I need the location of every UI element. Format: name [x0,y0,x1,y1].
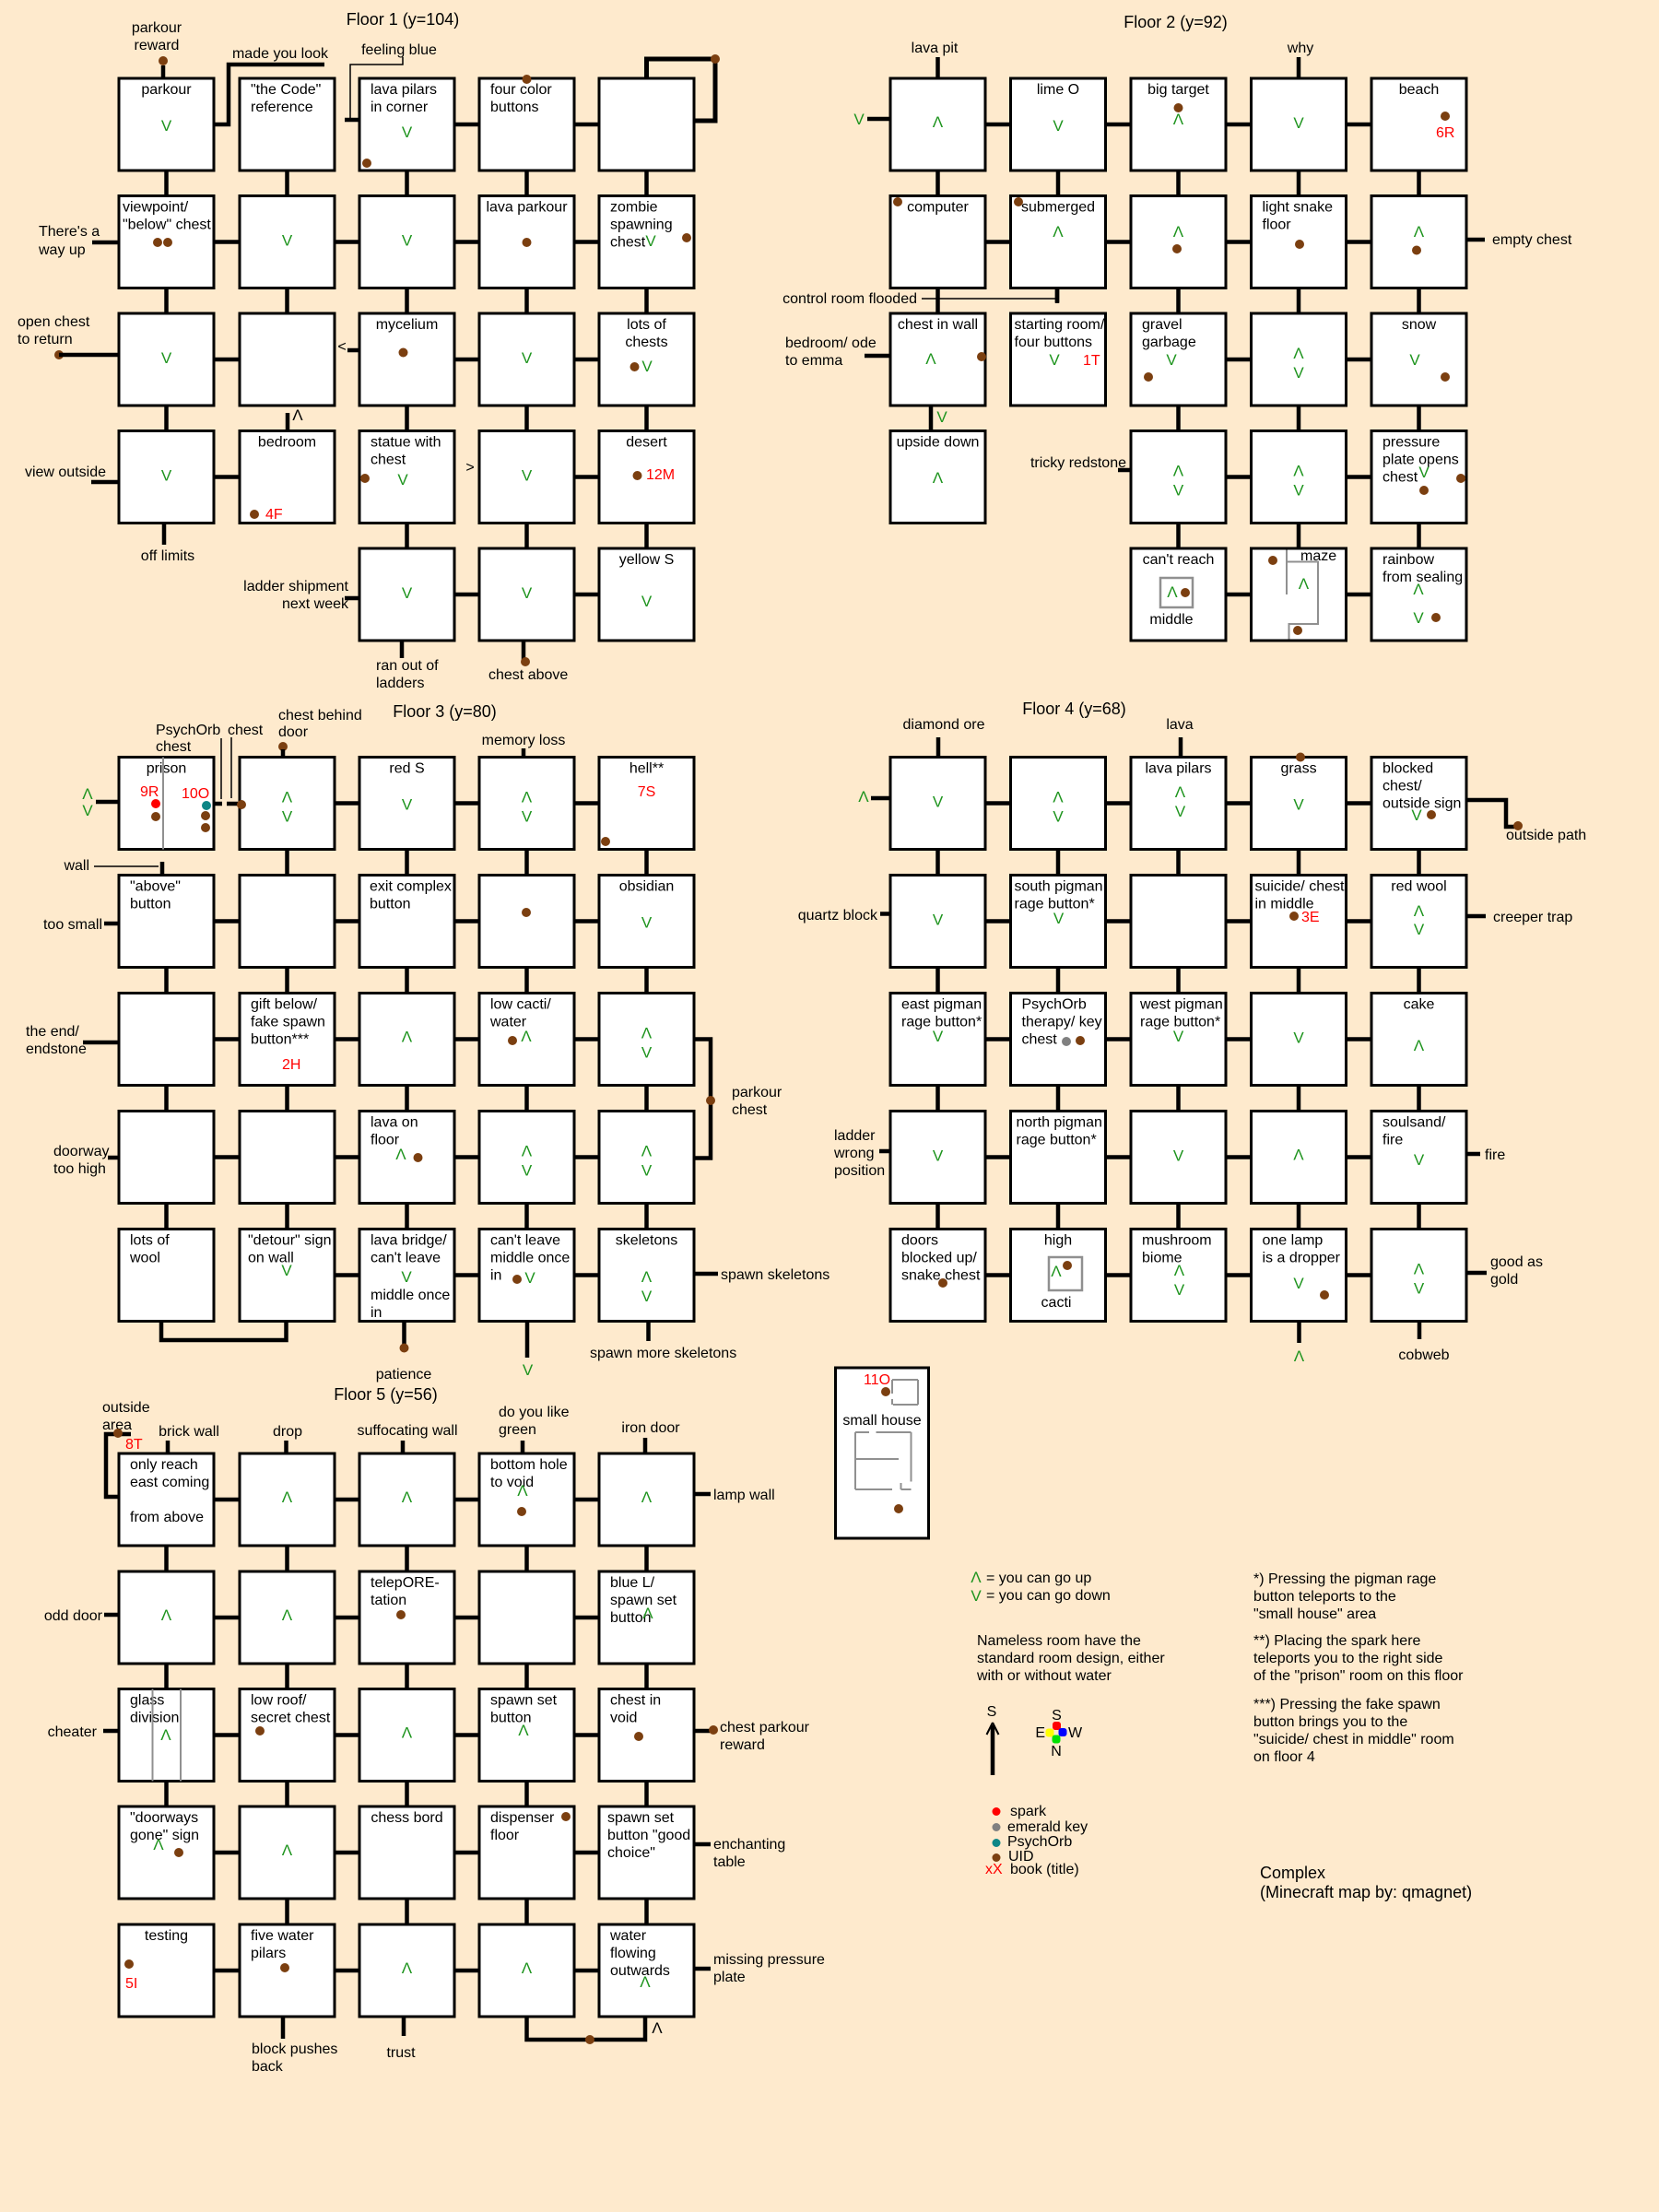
svg-text:emerald key: emerald key [1007,1819,1088,1835]
svg-text:lava pilars: lava pilars [371,82,437,98]
svg-text:V: V [281,1488,292,1506]
svg-text:open chest: open chest [18,314,90,330]
svg-text:trust: trust [386,2045,416,2061]
svg-text:chest behind: chest behind [278,708,362,724]
svg-text:four color: four color [490,82,552,98]
svg-text:west pigman: west pigman [1139,997,1223,1013]
svg-text:V: V [521,1028,532,1045]
svg-text:prison: prison [147,761,187,777]
svg-text:wool: wool [129,1251,160,1266]
svg-text:V: V [1413,223,1424,241]
svg-text:Floor 5 (y=56): Floor 5 (y=56) [334,1385,438,1404]
svg-text:"detour" sign: "detour" sign [248,1233,332,1249]
svg-text:ran out of: ran out of [376,658,439,674]
svg-text:V: V [642,1605,653,1622]
svg-text:2H: 2H [282,1057,300,1073]
svg-text:way up: way up [38,242,86,258]
svg-text:chest: chest [1022,1032,1058,1048]
svg-text:chest above: chest above [488,667,568,683]
svg-text:V: V [925,350,936,368]
svg-text:upside down: upside down [897,435,980,451]
svg-text:tation: tation [371,1593,406,1608]
svg-text:feeling blue: feeling blue [361,42,437,58]
svg-text:12M: 12M [646,467,675,483]
svg-text:V: V [1053,808,1064,826]
svg-text:V: V [1173,1147,1184,1165]
svg-text:chest in wall: chest in wall [898,317,978,333]
svg-text:mycelium: mycelium [376,317,439,333]
svg-text:gold: gold [1490,1272,1518,1288]
svg-text:"the Code": "the Code" [251,82,321,98]
svg-text:V: V [161,349,172,367]
svg-text:V: V [82,785,93,803]
svg-text:blue L/: blue L/ [610,1575,655,1591]
svg-text:good as: good as [1490,1254,1543,1270]
svg-text:Floor 4 (y=68): Floor 4 (y=68) [1022,700,1126,718]
svg-text:6R: 6R [1436,125,1454,141]
svg-text:V: V [1175,803,1186,820]
svg-text:wall: wall [63,858,89,874]
svg-text:W: W [1068,1725,1083,1741]
svg-text:V: V [641,1044,653,1062]
svg-text:secret chest: secret chest [251,1711,331,1726]
svg-text:chests: chests [625,335,667,350]
svg-text:hell**: hell** [629,761,664,777]
svg-text:lava pilars: lava pilars [1145,761,1211,777]
svg-text:chest/: chest/ [1382,779,1422,794]
svg-text:V: V [1167,583,1178,601]
svg-text:V: V [1172,462,1183,479]
svg-text:(Minecraft map by: qmagnet): (Minecraft map by: qmagnet) [1260,1883,1472,1901]
svg-text:why: why [1287,41,1313,56]
svg-text:10O: 10O [182,786,209,802]
svg-text:in: in [490,1268,501,1284]
svg-text:with or without water: with or without water [976,1668,1112,1684]
svg-text:V: V [153,1836,164,1853]
svg-text:V: V [641,1024,652,1041]
svg-text:V: V [1413,609,1424,627]
svg-text:wrong: wrong [833,1146,875,1161]
svg-text:in: in [371,1305,382,1321]
svg-text:suicide/ chest: suicide/ chest [1255,879,1345,895]
svg-text:V: V [1293,364,1304,382]
svg-text:V: V [971,1569,982,1586]
svg-text:drop: drop [273,1424,302,1440]
svg-text:V: V [160,1726,171,1744]
svg-text:grass: grass [1280,761,1316,777]
svg-text:V: V [1173,482,1184,500]
svg-text:V: V [523,1361,534,1379]
svg-text:ladder shipment: ladder shipment [243,579,348,594]
svg-text:spawn more skeletons: spawn more skeletons [590,1346,736,1361]
svg-text:low roof/: low roof/ [251,1693,307,1709]
svg-text:off limits: off limits [141,548,194,564]
svg-text:from above: from above [130,1510,204,1525]
svg-text:lamp wall: lamp wall [713,1488,775,1503]
svg-text:blocked: blocked [1382,761,1433,777]
svg-text:only reach: only reach [130,1457,198,1473]
svg-text:table: table [713,1854,746,1870]
svg-text:missing pressure: missing pressure [713,1952,825,1968]
svg-text:Nameless room have the: Nameless room have the [977,1633,1141,1649]
svg-text:telepORE-: telepORE- [371,1575,440,1591]
svg-text:chest parkour: chest parkour [720,1720,810,1735]
svg-text:cake: cake [1404,997,1435,1013]
svg-text:chest: chest [371,453,406,468]
svg-text:PsychOrb: PsychOrb [156,723,220,738]
svg-text:lots of: lots of [130,1233,170,1249]
svg-text:ladders: ladders [376,676,424,691]
svg-text:gravel: gravel [1142,317,1182,333]
svg-text:exit complex: exit complex [370,879,452,895]
svg-text:skeletons: skeletons [616,1233,678,1249]
svg-text:floor: floor [371,1133,400,1148]
svg-text:view outside: view outside [25,465,106,480]
svg-text:computer: computer [907,200,969,216]
svg-text:V: V [932,469,943,487]
svg-text:V: V [281,788,292,806]
svg-text:V: V [401,1724,412,1741]
svg-text:3E: 3E [1301,910,1320,925]
svg-text:outside: outside [102,1400,150,1416]
svg-text:V: V [281,1262,292,1279]
svg-text:division: division [130,1711,179,1726]
svg-text:chest in: chest in [610,1693,661,1709]
svg-text:V: V [160,1606,171,1624]
svg-text:empty chest: empty chest [1492,232,1572,248]
svg-text:mushroom: mushroom [1142,1233,1212,1249]
svg-text:V: V [1293,1347,1304,1365]
svg-text:9R: 9R [140,784,159,800]
svg-text:spark: spark [1010,1804,1047,1819]
svg-text:V: V [281,1606,292,1624]
svg-text:Floor 2 (y=92): Floor 2 (y=92) [1124,13,1228,31]
svg-text:V: V [1413,581,1424,598]
svg-text:V: V [1298,575,1309,593]
svg-text:V: V [641,1288,653,1305]
svg-text:V: V [401,1028,412,1045]
svg-text:Complex: Complex [1260,1864,1325,1882]
svg-text:brick wall: brick wall [159,1424,219,1440]
svg-text:V: V [1053,117,1064,135]
svg-text:iron door: iron door [621,1420,680,1436]
svg-text:position: position [834,1163,885,1179]
svg-text:V: V [395,1146,406,1163]
svg-text:rage button*: rage button* [1017,1133,1097,1148]
svg-text:5I: 5I [125,1976,137,1992]
svg-text:V: V [401,1268,412,1286]
svg-text:north pigman: north pigman [1017,1115,1102,1131]
svg-text:submerged: submerged [1021,200,1095,216]
svg-text:V: V [641,1142,652,1159]
svg-text:odd door: odd door [44,1608,103,1624]
svg-text:can't leave: can't leave [371,1251,441,1266]
svg-text:starting room/: starting room/ [1015,317,1105,333]
svg-text:V: V [1172,223,1183,241]
svg-text:V: V [521,1142,532,1159]
svg-text:door: door [278,724,309,740]
svg-text:"above": "above" [130,879,181,895]
svg-text:V: V [971,1587,982,1605]
svg-text:parkour: parkour [732,1085,782,1100]
svg-text:V: V [1414,1151,1425,1169]
svg-text:water: water [609,1928,647,1944]
svg-text:bedroom/ ode: bedroom/ ode [785,335,877,351]
svg-text:big target: big target [1147,82,1209,98]
svg-text:desert: desert [626,435,667,451]
svg-text:cobweb: cobweb [1398,1347,1449,1363]
svg-text:spawn set: spawn set [607,1810,675,1826]
svg-text:patience: patience [376,1367,432,1382]
svg-text:diamond ore: diamond ore [903,717,985,733]
svg-text:button teleports to the: button teleports to the [1253,1589,1396,1605]
svg-text:book (title): book (title) [1010,1862,1079,1877]
svg-text:gift below/: gift below/ [251,997,318,1013]
svg-text:lava parkour: lava parkour [486,200,568,216]
svg-text:outside path: outside path [1506,828,1586,843]
svg-text:lava on: lava on [371,1115,418,1131]
svg-text:V: V [402,124,413,141]
svg-text:do you like: do you like [499,1405,570,1420]
svg-text:V: V [1053,223,1064,241]
svg-text:V: V [933,794,944,811]
svg-text:V: V [1293,482,1304,500]
svg-text:plate: plate [713,1970,746,1985]
svg-text:V: V [401,1959,412,1977]
svg-text:button***: button*** [251,1032,309,1048]
svg-text:V: V [641,914,653,932]
svg-text:teleports you to the right sid: teleports you to the right side [1253,1651,1443,1666]
svg-text:chest: chest [1382,470,1418,486]
svg-text:"doorways: "doorways [130,1810,198,1826]
svg-text:glass: glass [130,1693,164,1709]
svg-text:reference: reference [251,100,313,115]
svg-text:V: V [641,358,653,375]
svg-text:V: V [1409,351,1420,369]
svg-text:lime O: lime O [1037,82,1079,98]
svg-text:V: V [858,788,869,806]
svg-text:V: V [1293,1275,1304,1292]
svg-text:V: V [522,1162,533,1180]
svg-text:dispenser: dispenser [490,1810,555,1826]
svg-text:button: button [130,897,171,912]
svg-text:V: V [1173,1262,1184,1279]
svg-text:can't reach: can't reach [1143,552,1215,568]
svg-text:PsychOrb: PsychOrb [1007,1834,1072,1850]
svg-text:quartz block: quartz block [798,908,878,924]
svg-text:V: V [402,796,413,814]
svg-text:chest: chest [156,739,192,755]
svg-text:creeper trap: creeper trap [1493,910,1572,925]
svg-text:lava: lava [1166,717,1193,733]
svg-text:>: > [465,460,474,476]
svg-text:tricky redstone: tricky redstone [1030,455,1126,471]
svg-text:= you can go up: = you can go up [986,1571,1091,1586]
svg-text:V: V [853,111,865,128]
svg-text:V: V [1293,114,1304,132]
svg-text:"below" chest: "below" chest [123,218,211,233]
svg-text:xX: xX [985,1862,1003,1877]
svg-text:made you look: made you look [232,46,329,62]
svg-text:statue with: statue with [371,435,441,451]
svg-text:PsychOrb: PsychOrb [1022,997,1087,1013]
svg-text:lava pit: lava pit [912,41,959,56]
svg-text:four buttons: four buttons [1015,335,1093,350]
svg-text:V: V [1414,1280,1425,1298]
svg-text:V: V [1413,902,1424,920]
svg-text:low cacti/: low cacti/ [490,997,551,1013]
svg-text:on floor 4: on floor 4 [1253,1749,1315,1765]
svg-text:V: V [641,593,653,610]
svg-text:4F: 4F [265,507,283,523]
svg-text:V: V [522,349,533,367]
svg-text:endstone: endstone [26,1041,87,1057]
svg-text:V: V [1174,783,1185,801]
svg-text:button: button [370,897,410,912]
svg-text:V: V [1049,351,1060,369]
svg-text:yellow S: yellow S [619,552,675,568]
svg-text:in corner: in corner [371,100,429,115]
svg-text:buttons: buttons [490,100,538,115]
svg-text:standard room design, either: standard room design, either [977,1651,1165,1666]
svg-text:V: V [281,1841,292,1859]
svg-text:V: V [397,471,408,488]
svg-text:choice": choice" [607,1845,655,1861]
svg-text:doors: doors [901,1233,938,1249]
svg-text:V: V [1293,462,1304,479]
svg-text:V: V [1172,111,1183,128]
svg-text:obsidian: obsidian [619,879,675,895]
svg-text:snow: snow [1402,317,1437,333]
svg-text:V: V [282,232,293,250]
svg-text:bedroom: bedroom [258,435,316,451]
svg-text:S: S [1052,1708,1062,1724]
svg-text:beach: beach [1399,82,1440,98]
svg-text:V: V [933,1028,944,1045]
svg-text:is a dropper: is a dropper [1263,1251,1341,1266]
svg-text:V: V [282,808,293,826]
svg-text:V: V [82,802,93,819]
svg-text:east pigman: east pigman [901,997,982,1013]
svg-text:V: V [936,408,947,426]
svg-text:too high: too high [53,1161,106,1177]
svg-text:V: V [932,113,943,131]
svg-text:11O: 11O [864,1372,890,1388]
svg-text:doorway: doorway [53,1144,109,1159]
svg-text:V: V [1293,1030,1304,1047]
svg-text:south pigman: south pigman [1015,879,1103,895]
svg-text:outside sign: outside sign [1382,796,1461,812]
svg-text:**) Placing the spark here: **) Placing the spark here [1253,1633,1421,1649]
svg-text:pressure: pressure [1382,435,1440,451]
svg-text:spawn set: spawn set [490,1693,558,1709]
svg-text:*) Pressing the pigman rage: *) Pressing the pigman rage [1253,1571,1436,1587]
svg-text:reward: reward [720,1737,765,1753]
svg-text:8T: 8T [125,1437,143,1453]
svg-text:V: V [641,1268,652,1286]
svg-text:of the "prison" room on this f: of the "prison" room on this floor [1253,1668,1464,1684]
svg-text:V: V [402,232,413,250]
svg-text:chest: chest [732,1102,768,1118]
svg-text:button "good: button "good [607,1828,690,1843]
svg-text:floor: floor [490,1828,520,1843]
svg-text:V: V [522,584,533,602]
svg-text:red wool: red wool [1391,879,1446,895]
svg-text:lava bridge/: lava bridge/ [371,1233,447,1249]
svg-text:the end/: the end/ [26,1024,79,1040]
svg-text:light snake: light snake [1263,200,1334,216]
svg-text:one lamp: one lamp [1263,1233,1324,1249]
svg-text:control room flooded: control room flooded [782,291,917,307]
svg-text:V: V [1166,351,1177,369]
svg-text:green: green [499,1422,536,1438]
svg-text:parkour: parkour [132,20,182,36]
svg-text:button brings you to the: button brings you to the [1253,1714,1407,1730]
svg-text:V: V [524,1269,535,1287]
svg-text:soulsand/: soulsand/ [1382,1115,1446,1131]
svg-text:high: high [1044,1233,1072,1249]
svg-text:V: V [1413,1260,1424,1277]
svg-text:There's a: There's a [39,224,100,240]
svg-text:V: V [522,467,533,485]
svg-text:fire: fire [1485,1147,1505,1163]
svg-text:can't leave: can't leave [490,1233,560,1249]
svg-text:middle once: middle once [371,1288,450,1303]
svg-text:V: V [1174,1281,1185,1299]
svg-text:to return: to return [18,332,73,347]
svg-text:V: V [522,808,533,826]
svg-text:zombie: zombie [610,200,658,216]
svg-text:***) Pressing the fake spawn: ***) Pressing the fake spawn [1253,1697,1441,1712]
svg-text:enchanting: enchanting [713,1837,785,1853]
svg-text:V: V [401,1488,412,1506]
svg-text:V: V [652,2019,663,2037]
svg-text:V: V [1413,1037,1424,1054]
svg-text:V: V [1293,1146,1304,1163]
svg-text:fake spawn: fake spawn [251,1015,325,1030]
svg-text:therapy/ key: therapy/ key [1022,1015,1102,1030]
svg-text:V: V [1051,1263,1062,1280]
svg-text:V: V [161,467,172,485]
svg-text:V: V [1418,464,1430,481]
svg-text:east coming: east coming [130,1475,209,1490]
svg-text:suffocating wall: suffocating wall [357,1423,457,1439]
svg-text:garbage: garbage [1142,335,1196,350]
svg-text:Floor 1 (y=104): Floor 1 (y=104) [347,10,460,29]
svg-text:V: V [1411,806,1422,824]
svg-text:blocked up/: blocked up/ [901,1251,977,1266]
svg-text:V: V [1293,345,1304,362]
svg-text:fire: fire [1382,1133,1403,1148]
svg-text:viewpoint/: viewpoint/ [123,200,189,216]
svg-text:small house: small house [842,1413,921,1429]
svg-text:testing: testing [145,1928,188,1944]
svg-text:middle once: middle once [490,1251,570,1266]
svg-text:<: < [337,339,346,355]
svg-text:lots of: lots of [627,317,666,333]
svg-text:reward: reward [135,38,180,53]
svg-text:N: N [1051,1744,1062,1759]
svg-text:next week: next week [282,596,349,612]
svg-text:chest: chest [610,235,646,251]
svg-text:red S: red S [389,761,424,777]
svg-text:V: V [517,1482,528,1500]
svg-text:middle: middle [1149,612,1193,628]
svg-text:block pushes: block pushes [252,2041,337,2057]
svg-text:"small house" area: "small house" area [1253,1606,1376,1622]
svg-text:chest: chest [228,723,264,738]
svg-text:Floor 3 (y=80): Floor 3 (y=80) [393,702,497,721]
